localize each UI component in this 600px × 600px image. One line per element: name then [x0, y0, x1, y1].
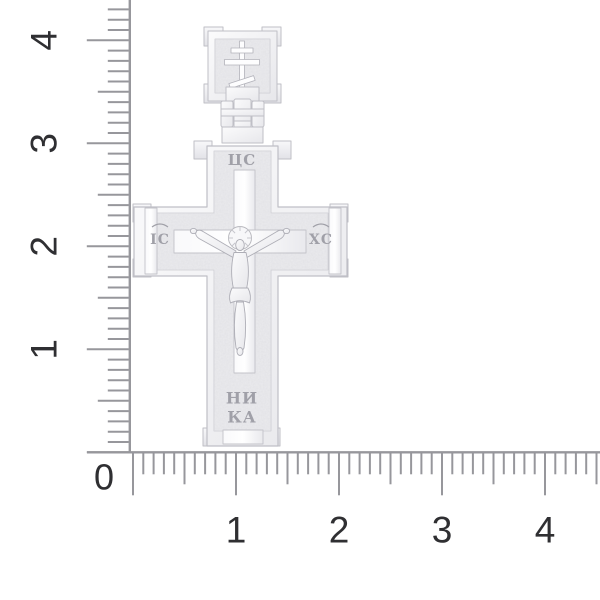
corpus-legs: [234, 302, 245, 355]
ruler-origin-number: 0: [94, 457, 114, 498]
hinge-pin: [221, 109, 264, 116]
product-photo: 4321 1234 0: [0, 0, 600, 600]
ruler-number: 1: [226, 510, 247, 551]
ruler-number: 4: [535, 510, 556, 551]
corpus-torso: [232, 253, 249, 290]
ruler-number: 4: [24, 30, 65, 51]
vertical-ruler-numbers: 4321: [24, 30, 65, 360]
inscription-ni: НИ: [226, 389, 258, 408]
inscription-top: ЦС: [228, 151, 256, 169]
corpus-head: [236, 239, 245, 250]
ruler-number: 2: [329, 510, 350, 551]
corpus-loincloth: [230, 288, 251, 303]
corpus-feet: [237, 348, 243, 356]
vertical-ruler-ticks: [87, 9, 129, 452]
scene-svg: 4321 1234 0: [0, 0, 600, 600]
inscription-ka: КА: [227, 408, 257, 427]
ruler-number: 1: [24, 339, 65, 360]
horizontal-ruler-ticks: [133, 453, 597, 495]
bail-hinge: [221, 87, 264, 143]
inscription-xc: ХС: [309, 232, 333, 248]
horizontal-ruler-numbers: 1234: [226, 510, 556, 551]
corpus-hand: [190, 228, 196, 233]
cross-pendant: ЦС ІС ХС НИ КА: [133, 27, 348, 446]
connector-block: [222, 127, 263, 143]
ruler-number: 3: [24, 133, 65, 154]
ruler-number: 2: [24, 236, 65, 257]
bottom-end-cap: [223, 430, 263, 444]
inscription-ic: ІС: [150, 232, 170, 248]
ruler-number: 3: [432, 510, 453, 551]
corpus-hand: [283, 228, 289, 233]
